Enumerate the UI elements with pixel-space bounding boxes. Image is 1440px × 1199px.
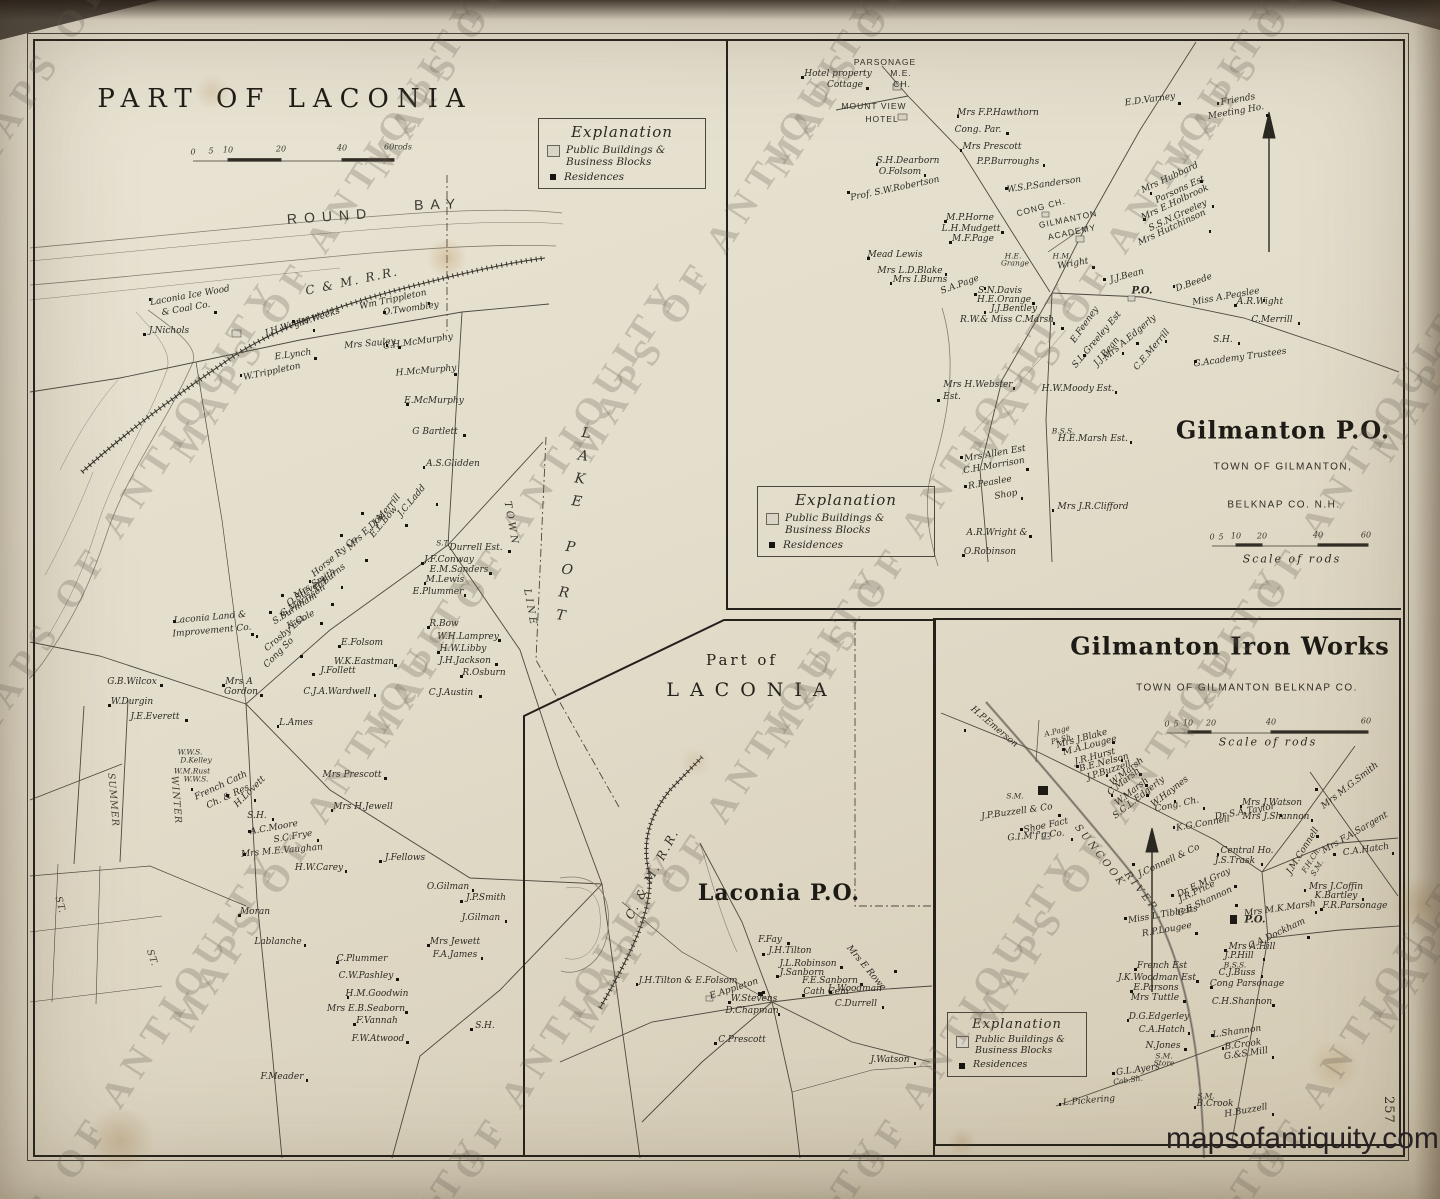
resident-label: A.R.Wight [1237,297,1283,307]
residence-dot [406,1041,409,1044]
resident-label: Hotel property [804,69,872,79]
residence-dot [394,664,397,667]
residence-dot [214,311,217,314]
map-label: 5 [1173,720,1178,729]
residence-dot [405,524,408,527]
legend-public-label: Public Buildings & [975,1034,1065,1045]
resident-label: C.J.Buss [1219,968,1256,978]
resident-label: J.H.Jackson [439,656,491,666]
resident-label: C.Plummer [337,954,388,964]
residence-dot [365,559,368,562]
antique-map-photo: PART OF LACONIA0510204060rodsROUNDBAYC &… [0,0,1440,1199]
residence-dot [1020,828,1023,831]
resident-label: E.Plummer [413,587,464,597]
map-label: 40 [1313,531,1323,540]
residence-dot [937,399,940,402]
residence-dot [312,673,315,676]
resident-label: Moran [240,907,270,917]
map-label: TOWN OF GILMANTON, [1214,462,1353,473]
resident-label: S.H. [247,811,266,821]
residence-swatch [550,174,556,180]
residence-dot [313,329,316,332]
resident-label: R.Osburn [462,668,505,678]
map-label: M.E. [890,68,911,78]
residence-dot [1103,278,1106,281]
resident-label: Lablanche [254,937,301,947]
residence-dot [320,622,323,625]
residence-dot [1392,852,1395,855]
resident-label: L.Ames [279,718,313,728]
resident-label: Mrs Jewett [430,937,480,947]
residence-dot [464,594,467,597]
residence-dot [1304,889,1307,892]
resident-label: C.Prescott [718,1035,765,1045]
resident-label: L.H.Mudgett [942,224,1001,234]
resident-label: J.Follett [320,666,355,676]
residence-dot [345,870,348,873]
residence-dot [1115,391,1118,394]
resident-label: J.P.Hill [1224,951,1253,961]
residence-dot [1111,794,1114,797]
legend-title: Explanation [766,491,926,509]
resident-label: F.Fay [758,935,782,945]
residence-dot [1106,774,1109,777]
residence-dot [964,485,967,488]
residence-dot [1315,911,1318,914]
residence-dot [379,860,382,863]
residence-dot [962,554,965,557]
residence-dot [1235,904,1238,907]
resident-label: J.Watson [870,1055,909,1065]
residence-dot [964,729,967,732]
residence-dot [778,1013,781,1016]
public-building-swatch [766,513,779,525]
resident-label: M.F.Page [952,234,994,244]
residence-dot [1315,788,1318,791]
residence-dot [424,582,427,585]
map-label: 10 [1183,719,1193,728]
residence-dot [1320,908,1323,911]
residence-dot [1272,1056,1275,1059]
residence-dot [272,818,275,821]
resident-label: Durrell Est. [449,543,502,553]
residence-dot [1122,352,1125,355]
residence-dot [1178,102,1181,105]
resident-label: Mrs Prescott [323,770,382,780]
residence-dot [1092,266,1095,269]
residence-dot [728,1001,731,1004]
resident-label: Mead Lewis [867,250,922,260]
legend-box-iron-works: Explanation Public Buildings & Business … [947,1012,1087,1077]
residence-dot [173,620,176,623]
legend-public-label2: Business Blocks [975,1045,1052,1056]
residence-dot [1234,304,1237,307]
map-label: Gilmanton Iron Works [1070,632,1390,661]
resident-label: F.Vannah [356,1016,398,1026]
residence-dot [1263,958,1266,961]
resident-label: J.Nichols [149,326,189,336]
residence-dot [1217,102,1220,105]
residence-dot [489,572,492,575]
residence-dot [1062,748,1065,751]
residence-dot [314,357,317,360]
resident-label: Mrs H.Jewell [333,802,392,812]
page-number: 257 [1381,1096,1396,1124]
residence-dot [260,694,263,697]
residence-dot [185,719,188,722]
map-label: MOUNT VIEW [841,101,906,111]
residence-dot [498,639,501,642]
residence-dot [1209,230,1212,233]
resident-label: C.Durrell [835,999,877,1009]
residence-dot [1210,986,1213,989]
map-label: D.Kelley [180,756,211,765]
residence-dot [1005,187,1008,190]
resident-label: Mrs J.Watson [1242,798,1302,808]
map-linework [0,0,1440,1199]
map-label: Gilmanton P.O. [1176,416,1390,445]
resident-label: O.Robinson [964,547,1016,557]
residence-dot [437,651,440,654]
resident-label: B.Crook [1197,1099,1234,1109]
resident-label: C.A.Hatch [1139,1025,1185,1035]
residence-dot [406,403,409,406]
resident-label: French Est [1137,961,1187,971]
residence-dot [1083,354,1086,357]
residence-dot [495,663,498,666]
legend-box-laconia: Explanation Public Buildings & Business … [538,118,706,189]
residence-dot [1194,360,1197,363]
residence-dot [1194,1106,1197,1109]
resident-label: G Bartlett [412,427,457,437]
residence-dot [1298,322,1301,325]
resident-label: C.W.Pashley [339,971,394,981]
residence-dot [143,333,146,336]
resident-label: J.S.Trask [1215,856,1255,866]
residence-dot [1061,327,1064,330]
resident-label: C.Merrill [1251,315,1292,325]
residence-dot [1134,968,1137,971]
residence-dot [1272,1004,1275,1007]
residence-dot [317,839,320,842]
map-label: 10 [223,146,233,155]
residence-dot [454,373,457,376]
residence-dot [1266,114,1269,117]
residence-dot [269,611,272,614]
legend-residences-label: Residences [564,171,624,183]
map-label: 20 [1257,532,1267,541]
residence-dot [890,282,893,285]
resident-label: W.H.Lamprey [437,632,499,642]
resident-label: Mrs Tuttle [1131,993,1179,1003]
residence-dot [281,594,284,597]
resident-label: O.Gilman [427,882,469,892]
residence-dot [405,1011,408,1014]
residence-dot [149,298,152,301]
residence-dot [866,87,869,90]
residence-dot [383,311,386,314]
residence-dot [829,991,832,994]
residence-dot [347,996,350,999]
map-label: P.O. [1245,915,1266,926]
legend-public-label2: Business Blocks [785,524,870,536]
resident-label: W.Durgin [111,697,153,707]
residence-dot [1222,1047,1225,1050]
map-label: 60 [1361,717,1371,726]
residence-dot [1029,535,1032,538]
resident-label: J.J.Bentley [991,304,1037,314]
residence-dot [847,191,850,194]
map-label: Laconia P.O. [698,880,860,906]
resident-label: Mrs F.P.Hawthorn [957,108,1039,118]
residence-dot [1211,1034,1214,1037]
resident-label: Mrs Prescott [963,142,1022,152]
residence-dot [374,694,377,697]
residence-dot [292,320,295,323]
residence-dot [1173,826,1176,829]
residence-dot [1143,218,1146,221]
residence-dot [1261,975,1264,978]
resident-label: Cong Parsonage [1210,979,1284,989]
resident-label: E.Parsons [1133,983,1178,993]
residence-dot [1307,936,1310,939]
residence-dot [331,809,334,812]
map-label: 10 [1231,532,1241,541]
residence-dot [251,633,254,636]
resident-label: Mrs J.Shannon [1243,812,1310,822]
resident-label: J.H.Tilton [768,946,811,956]
map-label: 0 [190,148,195,157]
map-label: P.O. [1132,286,1153,297]
residence-dot [1058,814,1061,817]
legend-public-label: Public Buildings & [566,144,665,156]
residence-dot [762,953,765,956]
residence-dot [331,603,334,606]
resident-label: Est. [943,392,961,402]
map-label: S.T. [436,539,450,548]
residence-dot [460,675,463,678]
resident-label: W.Stevens [731,994,777,1004]
resident-label: J.P.Smith [466,893,506,903]
residence-dot [341,586,344,589]
residence-dot [1311,819,1314,822]
map-label: S.M. [1006,792,1023,801]
residence-dot [984,311,987,314]
map-label: Part of [706,651,778,669]
map-label: BAY [414,195,463,213]
residence-dot [840,966,843,969]
residence-dot [472,889,475,892]
map-label: 5 [1218,533,1223,542]
legend-title: Explanation [956,1017,1078,1032]
residence-dot [427,944,430,947]
residence-dot [1013,387,1016,390]
residence-dot [479,695,482,698]
residence-dot [1261,863,1264,866]
residence-dot [1316,835,1319,838]
resident-label: H.W.Moody Est. [1042,384,1115,394]
resident-label: K.Bartley [1315,891,1358,901]
resident-label: E.Folsom [341,638,383,648]
resident-label: Mrs I.Burns [893,275,948,285]
resident-label: F.R.Parsonage [1323,901,1388,911]
resident-label: E.M.Sanders [430,565,489,575]
resident-label: J.K.Woodman Est [1118,973,1196,983]
residence-dot [470,1028,473,1031]
residence-dot [300,655,303,658]
residence-dot [1052,509,1055,512]
residence-dot [1272,1113,1275,1116]
resident-label: Mrs A [225,677,253,687]
residence-dot [396,978,399,981]
resident-label: J.E.Everett [130,712,179,722]
residence-dot [1112,1072,1115,1075]
resident-label: D.G.Edgerley [1129,1012,1190,1022]
legend-public-label2: Business Blocks [566,156,651,168]
legend-title: Explanation [547,123,697,141]
resident-label: M.Lewis [426,575,465,585]
resident-label: H.M.Goodwin [346,989,409,999]
residence-dot [1130,441,1133,444]
residence-dot [867,257,870,260]
residence-dot [1234,885,1237,888]
residence-dot [636,983,639,986]
resident-label: J.H.Tilton & E.Folsom [639,976,738,986]
residence-dot [238,914,241,917]
resident-label: O.Folsom [879,167,921,177]
residence-dot [1127,1019,1130,1022]
residence-dot [1124,917,1127,920]
map-label: W.W.S. [184,775,209,784]
map-label: 40 [1266,718,1276,727]
residence-dot [436,503,439,506]
residence-dot [256,635,259,638]
resident-label: N.Jones [1146,1041,1181,1051]
residence-dot [481,957,484,960]
resident-label: H.W.Libby [440,644,487,654]
resident-label: Cottage [827,80,863,90]
map-label: Grange [1001,259,1029,268]
residence-dot [1203,807,1206,810]
residence-dot [1195,932,1198,935]
residence-dot [463,434,466,437]
map-label: 0 [1164,720,1169,729]
residence-dot [361,512,364,515]
resident-label: F.A.James [433,950,478,960]
residence-dot [338,645,341,648]
residence-swatch [959,1063,965,1069]
residence-dot [914,1062,917,1065]
residence-dot [508,550,511,553]
residence-dot [108,704,111,707]
residence-dot [1132,863,1135,866]
map-label: 20 [1206,719,1216,728]
resident-label: R.Bow [429,619,458,629]
residence-dot [1150,192,1153,195]
resident-label: S.H.Dearborn [877,156,940,166]
residence-dot [1184,1048,1187,1051]
residence-dot [1146,794,1149,797]
residence-dot [1059,1103,1062,1106]
resident-label: M.P.Horne [946,213,994,223]
residence-dot [505,920,508,923]
site-credit-watermark: mapsofantiquity.com [1166,1122,1439,1156]
residence-dot [802,994,805,997]
map-label: PART OF LACONIA [97,84,472,114]
legend-residences-label: Residences [783,539,843,551]
map-label: 0 [1209,533,1214,542]
resident-label: F.Meader [260,1072,303,1082]
map-label: PARSONAGE [854,57,916,67]
resident-label: Cong. Par. [955,125,1002,135]
residence-dot [386,344,389,347]
map-label: LACONIA [666,679,837,701]
resident-label: J.Fellows [385,853,425,863]
resident-label: Mrs H.Webster [943,380,1012,390]
resident-label: Central Ho. [1220,846,1273,856]
residence-dot [787,942,790,945]
map-label: BELKNAP CO. N.H. [1227,500,1340,511]
resident-label: J.Gilman [462,913,500,923]
resident-label: Mrs J.R.Clifford [1058,502,1129,512]
resident-label: C.J.A.Wardwell [303,687,370,697]
residence-dot [421,562,424,565]
residence-dot [957,115,960,118]
residence-dot [776,975,779,978]
public-building-swatch [547,145,560,157]
residence-dot [1188,1032,1191,1035]
residence-dot [1240,805,1243,808]
resident-label: Gordon [224,687,258,697]
resident-label: H.E.Marsh Est. [1058,434,1128,444]
resident-label: J.F.Conway [424,555,474,565]
residence-dot [960,456,963,459]
residence-dot [384,777,387,780]
resident-label: E.McMurphy [404,396,464,406]
residence-dot [1173,285,1176,288]
map-label: 5 [208,147,213,156]
resident-label: D.Chapman [725,1006,778,1016]
residence-dot [1001,231,1004,234]
residence-dot [460,900,463,903]
residence-dot [353,1023,356,1026]
residence-dot [876,163,879,166]
resident-label: G.B.Wilcox [107,677,157,687]
map-label: 60 [1361,531,1371,540]
residence-dot [1212,205,1215,208]
residence-dot [243,853,246,856]
public-building-swatch [956,1036,969,1048]
residence-dot [1238,342,1241,345]
residence-dot [248,830,251,833]
map-label: 20 [276,145,286,154]
resident-label: A.R.Wright & [966,528,1027,538]
map-label: CH. [893,79,911,89]
map-label: 60rods [384,143,412,152]
resident-label: P.P.Burroughs [977,157,1040,167]
map-label: 40 [337,144,347,153]
map-label: Scale of rods [1243,553,1342,566]
resident-label: R.W.& Miss C.Marsh [960,315,1054,325]
legend-residences-label: Residences [973,1060,1027,1071]
resident-label: C.J.Austin [429,688,473,698]
resident-label: S.H. [1213,335,1232,345]
residence-dot [427,626,430,629]
residence-dot [191,788,194,791]
residence-dot [1053,322,1056,325]
residence-dot [894,970,897,973]
residence-dot [340,534,343,537]
